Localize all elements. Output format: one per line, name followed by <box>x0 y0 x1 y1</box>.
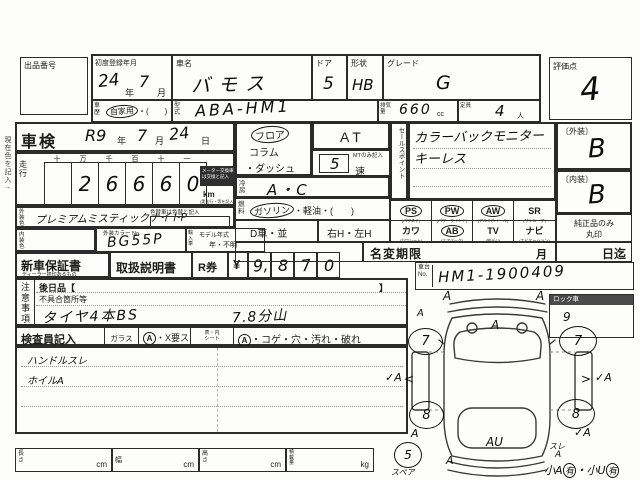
shape-value: HB <box>352 76 374 94</box>
mark-left-lower: A <box>411 427 419 440</box>
equip-aw: AW(アルミホイール) <box>472 200 514 221</box>
wheel-front-right-mark: 7 <box>559 326 597 356</box>
auction-no-label: 出品番号 <box>24 60 56 71</box>
history-private-circled: 自家用 <box>106 104 139 119</box>
height-label: 高さ <box>202 451 210 465</box>
height-unit: cm <box>270 460 281 469</box>
wheel-rear-left-mark: 8 <box>409 401 444 429</box>
mark-scuff-a: A <box>555 450 561 460</box>
shape-label: 形状 <box>351 58 367 69</box>
grade-value: G <box>436 72 451 94</box>
equip-pw: PW(パワーウインド) <box>431 200 473 221</box>
shape-cell: 形状 HB <box>347 55 383 100</box>
door-label: ドア <box>316 58 332 69</box>
place-header: 百 <box>122 154 148 162</box>
shaken-month-suffix: 月 <box>155 134 164 147</box>
glass-label: ガラス <box>104 328 139 344</box>
warranty-note: ディーラー捺印あるもの <box>22 271 77 278</box>
shaken-label: 車検 <box>21 128 57 152</box>
mt-gear-value: 5 <box>330 155 340 173</box>
wheel-fl-value: 7 <box>421 334 429 349</box>
shaken-year-suffix: 年 <box>117 134 126 147</box>
displacement-value: 660 <box>399 102 432 118</box>
notes-hand-tyres: タイヤ4本BS <box>42 304 140 327</box>
equip-ps: PS(パワステ) <box>390 200 432 221</box>
handle-cell: 右H・左H <box>318 220 390 242</box>
mark-front-right: A <box>536 289 544 303</box>
length-cell: 長さ cm <box>15 448 112 472</box>
car-name-value: バモス <box>191 69 273 99</box>
capacity-label: 定員 <box>460 103 472 109</box>
sales-content-cell: カラーバックモニター キーレス <box>408 122 556 200</box>
equip-ab: AB(エアバッグ) <box>431 220 473 242</box>
import-label: 輸入車 <box>188 231 196 248</box>
model-year-value: 年・不明 <box>209 240 237 250</box>
door-value: 5 <box>323 74 334 94</box>
shaken-cell: 車検 R9 年 7 月 24 日 <box>15 122 235 152</box>
fuel-options: ガソリン・軽油・( ) <box>250 203 354 218</box>
color-change-note: 色替車は色替と記入 <box>150 208 200 216</box>
note-small-a: 小A <box>544 464 563 477</box>
capacity-value: 4 <box>495 102 505 120</box>
shaken-day-suffix: 日 <box>201 134 210 147</box>
displacement-cell: 排気量 660 cc <box>378 100 458 122</box>
mark-right-lower: ✓A <box>574 426 591 439</box>
month-suffix: 月 <box>157 86 166 99</box>
door-cell: ドア 5 <box>312 55 347 100</box>
wheel-rear-right-mark: 8 <box>557 399 595 429</box>
fuel-label: 燃料 <box>238 201 246 215</box>
glass-x-label: ・X要ス <box>156 333 189 343</box>
digit-box: 6 <box>153 162 180 206</box>
mark-right-arrow: > <box>581 372 591 386</box>
margin-note: 現在色を記入→ <box>2 136 12 192</box>
equip-leather: カワ(カワシート) <box>390 220 432 242</box>
manual-label: 取扱説明書 <box>116 259 176 276</box>
genuine-note-line2: 丸印 <box>557 229 631 240</box>
width-unit: cm <box>183 460 194 469</box>
wheel-rl-value: 8 <box>422 408 430 423</box>
exterior-rating-box: 〔外装〕 B <box>556 122 632 170</box>
genuine-note-line1: 純正品のみ <box>557 218 631 229</box>
mark-left-arrow: < <box>404 372 414 386</box>
handle-value: 右H・左H <box>327 225 371 240</box>
mark-left-fender: A <box>417 308 424 319</box>
color-no-value: BG55P <box>107 231 165 251</box>
capacity-cell: 定員 4 人 <box>458 100 540 122</box>
genuine-parts-note: 純正品のみ 丸印 <box>556 214 632 242</box>
chassis-label-no: No. <box>418 272 430 279</box>
sales-label: セールスポイント <box>395 127 405 179</box>
mark-front-left: A <box>443 289 451 303</box>
first-registration-label: 初度登録年月 <box>95 58 137 68</box>
spare-mark-value: 5 <box>404 448 412 462</box>
model-year-label: モデル年式 <box>199 230 229 239</box>
blank-cell <box>235 242 363 262</box>
grade-cell: グレード G <box>383 55 540 100</box>
badge-line2: は交換と記入 <box>202 174 234 180</box>
aircon-value: A・C <box>267 179 309 200</box>
shaken-day: 24 <box>168 123 190 144</box>
registration-year-value: 24 <box>97 70 121 92</box>
mileage-digit-boxes: 2 6 6 6 0 <box>44 162 207 206</box>
length-unit: cm <box>96 460 107 469</box>
sales-label-cell: セールスポイント <box>390 122 408 200</box>
chassis-label-kanji: 車台 <box>418 265 430 272</box>
width-cell: 幅 cm <box>112 448 199 472</box>
mark-hood: A <box>491 318 499 332</box>
glass-marks: A・X要ス <box>143 331 189 345</box>
wheel-rr-value: 8 <box>572 407 580 422</box>
mileage-cell: 走行 十 万 千 百 十 一 2 6 6 6 0 km (実走行・等を記入) メ… <box>15 152 235 206</box>
mark-rear-left: A <box>446 454 454 467</box>
model-label: 型式 <box>174 103 184 117</box>
capacity-unit: 人 <box>517 111 524 121</box>
place-header: 万 <box>70 154 96 162</box>
place-header: 千 <box>96 154 122 162</box>
exterior-color-cell: 外装色 プレミアムミスティックナイトP 色替車は色替と記入 <box>15 206 235 228</box>
inspector-divider <box>217 348 218 432</box>
mileage-label: 走行 <box>19 160 29 178</box>
seat-marks: A・コゲ・穴・汚れ・破れ <box>238 331 361 347</box>
mt-cell: 5 MTのみ記入 速 <box>312 150 390 176</box>
auction-no-box: 出品番号 <box>20 57 88 115</box>
interior-rating-box: 〔内装〕 B <box>556 170 632 214</box>
chassis-value: HM1-1900409 <box>438 262 567 287</box>
r-ticket-label: R券 <box>198 259 217 275</box>
note-small-u-yes-circled: 有 <box>605 463 619 479</box>
mark-right-fender: 9 <box>563 310 571 324</box>
circled-a-icon: A <box>143 332 156 345</box>
name-change-month: 月 <box>536 246 547 262</box>
notes-line2: 不具合箇所等 <box>39 294 87 305</box>
until-label: 日迄 <box>602 245 626 262</box>
height-cell: 高さ cm <box>199 448 286 472</box>
shift-column: コラム <box>249 144 279 159</box>
history-paren: ・( ) <box>138 107 167 116</box>
inspector-hand-1: ハンドルスレ <box>27 352 87 367</box>
notes-label: 注意事項 <box>17 280 35 324</box>
cc-unit: cc <box>437 111 444 118</box>
load-cell: 積載量 kg <box>286 448 374 472</box>
color-change-box <box>150 216 230 227</box>
digit-box: 2 <box>72 162 99 206</box>
color-no-cell: 外装カラー No. BG55P <box>96 228 186 252</box>
place-header: 十 <box>148 154 174 162</box>
auction-sheet: 現在色を記入→ 出品番号 初度登録年月 24 年 7 月 車名 バモス ドア 5… <box>0 0 640 480</box>
mark-left-side: ✓A <box>385 371 402 384</box>
model-value: ABA-HM1 <box>195 97 292 121</box>
sales-line-2: キーレス <box>414 148 466 167</box>
km-note: (実走行・等を記入) <box>200 199 235 205</box>
model-cell: 型式 ABA-HM1 <box>172 100 378 122</box>
seat-label: 表・内 シート <box>190 328 234 344</box>
small-damage-note: 小A有・小U有 <box>544 462 619 478</box>
mt-gear-box: 5 <box>319 154 349 173</box>
car-name-label: 車名 <box>176 58 192 69</box>
mark-right-side: ✓A <box>595 371 612 384</box>
shift-dash: ・ダッシュ <box>245 160 295 175</box>
length-label: 長さ <box>18 451 26 465</box>
displacement-label: 排気量 <box>380 103 392 115</box>
equipment-grid: PS(パワステ) PW(パワーウインド) AW(アルミホイール) SR(サンルー… <box>390 200 556 242</box>
name-change-label: 名変期限 <box>370 245 422 262</box>
wheel-front-left-mark: 7 <box>408 328 443 355</box>
mileage-headers: 十 万 千 百 十 一 <box>44 154 200 162</box>
spare-tire-mark: 5 <box>394 442 422 468</box>
inspector-label: 検査員記入 <box>21 331 76 347</box>
mt-note: MTのみ記入 <box>353 153 387 159</box>
score-label: 評価点 <box>553 61 577 72</box>
load-unit: kg <box>361 460 369 469</box>
chassis-cell: 車台 No. HM1-1900409 <box>415 262 634 290</box>
notes-block: 注意事項 後日品【 】 不具合箇所等 タイヤ4本BS 7.8分山 <box>15 278 408 326</box>
meter-exchange-badge: メーター交換車 は交換と記入 <box>200 166 236 186</box>
equip-navi: ナビ(ナビゲーション) <box>513 220 556 242</box>
warranty-cell: 新車保証書 ディーラー捺印あるもの <box>15 252 110 278</box>
shift-floor-circled: フロア <box>250 125 289 145</box>
place-header: 一 <box>174 154 200 162</box>
car-name-cell: 車名 バモス <box>172 55 312 100</box>
exterior-rating-value: B <box>587 134 606 165</box>
digit-box <box>44 162 72 206</box>
interior-color-label: 内装色 <box>19 232 29 250</box>
dcar-value: D車・並 <box>250 225 287 240</box>
score-box: 評価点 4 <box>549 57 632 120</box>
seat-damage-labels: ・コゲ・穴・汚れ・破れ <box>251 335 361 346</box>
r-ticket-cell: R券 <box>192 252 228 278</box>
fuel-cell: 燃料 ガソリン・軽油・( ) <box>235 198 390 220</box>
sales-line-1: カラーバックモニター <box>414 125 544 146</box>
exterior-color-label: 外装色 <box>19 209 29 227</box>
equip-tv: TV(地デジ) <box>472 220 514 242</box>
history-label: 車歴 <box>94 103 104 117</box>
load-label: 積載量 <box>289 450 297 467</box>
interior-rating-value: B <box>587 180 606 211</box>
shaken-era-year: R9 <box>85 126 106 145</box>
aircon-cell: 冷房 A・C <box>235 176 390 198</box>
until-cell: 日迄 <box>556 242 632 262</box>
seat-label-bottom: シート <box>191 336 233 342</box>
at-value: AT <box>340 129 365 145</box>
note-small-u: ・小U <box>576 464 606 477</box>
fuel-rest: ・軽油・( ) <box>294 206 354 216</box>
at-cell: AT <box>312 122 390 150</box>
wheel-fr-value: 7 <box>574 334 582 349</box>
grade-label: グレード <box>387 58 419 69</box>
inspector-hand-2: ホイルA <box>27 372 64 387</box>
mark-rear-center: AU <box>486 435 503 449</box>
shift-floor: フロア <box>251 126 289 143</box>
inspector-header: 検査員記入 ガラス A・X要ス 表・内 シート A・コゲ・穴・汚れ・破れ <box>15 326 408 346</box>
year-suffix: 年 <box>125 86 134 99</box>
place-header: 十 <box>44 154 70 162</box>
manual-cell: 取扱説明書 <box>110 252 192 278</box>
aircon-label: 冷房 <box>239 180 247 194</box>
fuel-gasoline-circled: ガソリン <box>250 201 295 219</box>
registration-month-value: 7 <box>139 72 149 91</box>
spare-label: スペア <box>391 467 414 478</box>
dcar-cell: D車・並 <box>235 220 318 242</box>
first-registration-cell: 初度登録年月 24 年 7 月 <box>92 55 172 100</box>
chassis-label: 車台 No. <box>418 265 433 287</box>
inspector-body: ハンドルスレ ホイルA <box>15 346 408 434</box>
digit-box: 6 <box>126 162 153 206</box>
km-unit: km <box>203 190 215 199</box>
notes-hand-tread: 7.8分山 <box>232 305 288 328</box>
shift-cell: フロア コラム ・ダッシュ <box>235 122 312 176</box>
history-cell: 車歴 自家用・( ) <box>92 100 172 122</box>
interior-color-cell: 内装色 <box>15 228 96 252</box>
name-change-cell: 名変期限 月 <box>363 242 556 262</box>
score-value: 4 <box>578 69 602 109</box>
digit-box: 6 <box>99 162 126 206</box>
equip-sr: SR(サンルーフ) <box>513 200 556 221</box>
note-small-a-yes-circled: 有 <box>562 463 576 479</box>
width-label: 幅 <box>115 455 122 465</box>
shaken-month: 7 <box>137 126 147 145</box>
